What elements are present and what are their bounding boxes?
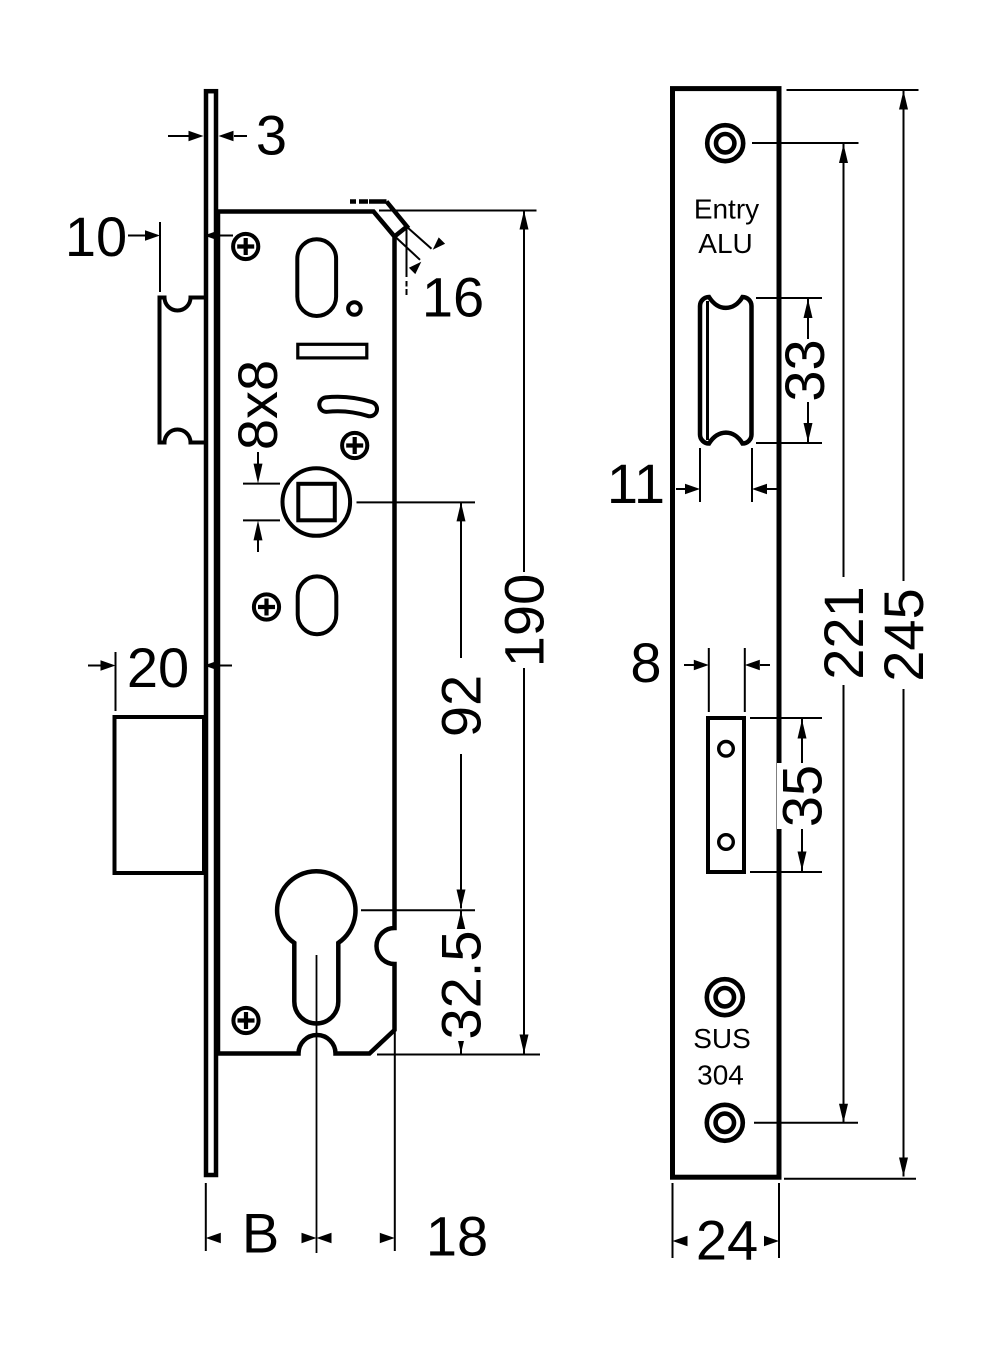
svg-text:B: B: [242, 1202, 279, 1265]
svg-text:8: 8: [630, 631, 661, 694]
svg-text:SUS: SUS: [693, 1023, 751, 1054]
svg-text:304: 304: [697, 1060, 744, 1091]
svg-text:190: 190: [493, 574, 556, 667]
svg-text:24: 24: [696, 1209, 758, 1272]
svg-text:10: 10: [65, 205, 127, 268]
svg-text:221: 221: [812, 586, 875, 679]
svg-text:11: 11: [607, 452, 665, 515]
svg-text:32.5: 32.5: [430, 931, 493, 1040]
svg-text:92: 92: [430, 675, 493, 737]
svg-text:8x8: 8x8: [226, 360, 289, 450]
svg-text:ALU: ALU: [698, 228, 752, 259]
svg-text:Entry: Entry: [694, 194, 759, 225]
svg-text:3: 3: [256, 104, 287, 167]
svg-text:245: 245: [872, 588, 935, 681]
svg-text:20: 20: [127, 636, 189, 699]
svg-text:16: 16: [422, 266, 484, 329]
svg-text:33: 33: [773, 339, 836, 401]
svg-text:18: 18: [426, 1205, 488, 1268]
svg-text:35: 35: [771, 765, 834, 827]
